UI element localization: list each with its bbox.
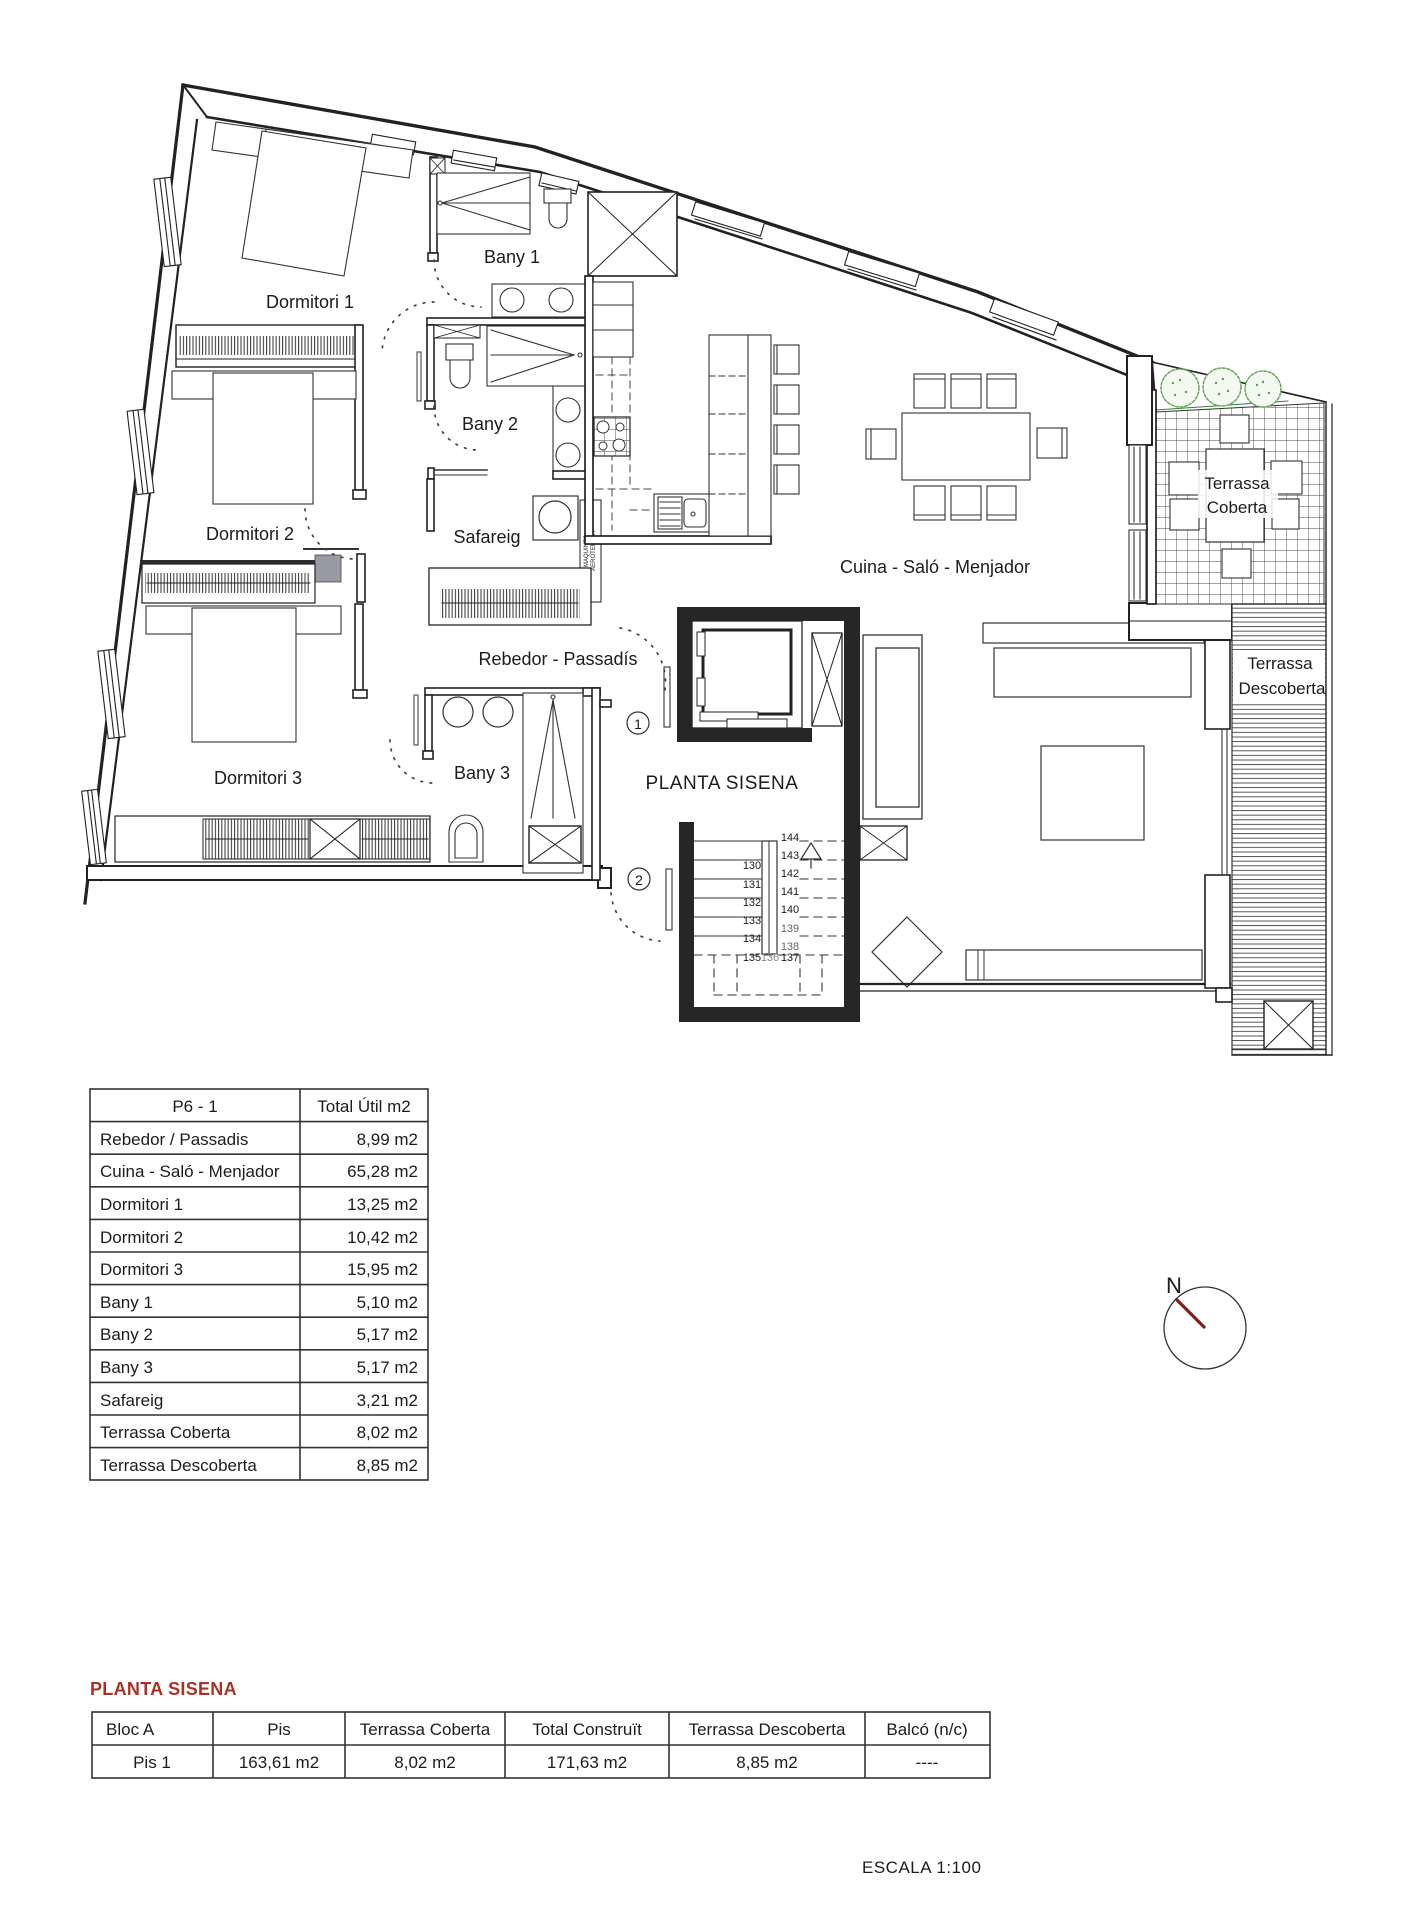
svg-text:Coberta: Coberta — [1207, 498, 1268, 517]
svg-text:140: 140 — [781, 904, 799, 916]
svg-text:133: 133 — [743, 915, 761, 927]
svg-text:PLANTA SISENA: PLANTA SISENA — [646, 773, 799, 794]
svg-text:137: 137 — [781, 952, 799, 964]
svg-text:130: 130 — [743, 860, 761, 872]
svg-text:134: 134 — [743, 933, 761, 945]
svg-text:10,42 m2: 10,42 m2 — [347, 1228, 418, 1247]
svg-text:8,85 m2: 8,85 m2 — [736, 1753, 797, 1772]
svg-text:65,28 m2: 65,28 m2 — [347, 1162, 418, 1181]
svg-text:141: 141 — [781, 886, 799, 898]
svg-text:Terrassa Coberta: Terrassa Coberta — [360, 1720, 491, 1739]
svg-text:3,21 m2: 3,21 m2 — [357, 1391, 418, 1410]
svg-text:142: 142 — [781, 868, 799, 880]
svg-text:Terrassa Descoberta: Terrassa Descoberta — [689, 1720, 846, 1739]
svg-text:Dormitori 2: Dormitori 2 — [100, 1228, 183, 1247]
svg-text:Bloc A: Bloc A — [106, 1720, 155, 1739]
svg-text:Safareig: Safareig — [100, 1391, 163, 1410]
svg-text:8,02 m2: 8,02 m2 — [394, 1753, 455, 1772]
svg-text:Cuina - Saló - Menjador: Cuina - Saló - Menjador — [100, 1162, 280, 1181]
svg-text:Dormitori 1: Dormitori 1 — [100, 1195, 183, 1214]
svg-text:Bany 1: Bany 1 — [484, 247, 540, 267]
svg-text:N: N — [1166, 1273, 1182, 1298]
svg-text:5,17 m2: 5,17 m2 — [357, 1325, 418, 1344]
svg-text:Pis 1: Pis 1 — [133, 1753, 171, 1772]
svg-text:Dormitori 2: Dormitori 2 — [206, 524, 294, 544]
svg-text:Descoberta: Descoberta — [1239, 679, 1326, 698]
svg-text:----: ---- — [916, 1753, 939, 1772]
svg-text:Bany 2: Bany 2 — [462, 414, 518, 434]
svg-text:135: 135 — [743, 952, 761, 964]
svg-text:Dormitori 3: Dormitori 3 — [214, 768, 302, 788]
svg-text:Cuina - Saló - Menjador: Cuina - Saló - Menjador — [840, 557, 1030, 577]
svg-text:Bany 3: Bany 3 — [454, 763, 510, 783]
svg-text:Total Construït: Total Construït — [532, 1720, 642, 1739]
svg-text:Dormitori 3: Dormitori 3 — [100, 1260, 183, 1279]
svg-text:Bany 1: Bany 1 — [100, 1293, 153, 1312]
svg-text:144: 144 — [781, 832, 799, 844]
svg-text:2: 2 — [635, 872, 643, 888]
svg-text:8,85 m2: 8,85 m2 — [357, 1456, 418, 1475]
svg-text:Balcó (n/c): Balcó (n/c) — [886, 1720, 967, 1739]
svg-text:Terrassa: Terrassa — [1204, 474, 1270, 493]
svg-text:5,10 m2: 5,10 m2 — [357, 1293, 418, 1312]
svg-text:P6 - 1: P6 - 1 — [172, 1097, 217, 1116]
svg-text:Bany 3: Bany 3 — [100, 1358, 153, 1377]
svg-text:Rebedor / Passadis: Rebedor / Passadis — [100, 1130, 248, 1149]
svg-text:PLANTA SISENA: PLANTA SISENA — [90, 1679, 237, 1699]
svg-text:Terrassa Descoberta: Terrassa Descoberta — [100, 1456, 257, 1475]
svg-text:Total Útil m2: Total Útil m2 — [317, 1097, 411, 1116]
svg-text:143: 143 — [781, 850, 799, 862]
svg-text:Pis: Pis — [267, 1720, 291, 1739]
svg-text:Rebedor - Passadís: Rebedor - Passadís — [478, 649, 637, 669]
svg-text:163,61 m2: 163,61 m2 — [239, 1753, 319, 1772]
svg-text:1: 1 — [634, 716, 642, 732]
svg-text:8,99 m2: 8,99 m2 — [357, 1130, 418, 1149]
svg-text:Bany 2: Bany 2 — [100, 1325, 153, 1344]
svg-text:171,63 m2: 171,63 m2 — [547, 1753, 627, 1772]
svg-text:Safareig: Safareig — [453, 527, 520, 547]
svg-text:ESCALA 1:100: ESCALA 1:100 — [862, 1858, 981, 1877]
svg-text:132: 132 — [743, 897, 761, 909]
svg-text:139: 139 — [781, 923, 799, 935]
svg-text:13,25 m2: 13,25 m2 — [347, 1195, 418, 1214]
svg-text:Terrassa Coberta: Terrassa Coberta — [100, 1423, 231, 1442]
svg-text:Terrassa: Terrassa — [1247, 654, 1313, 673]
svg-text:8,02 m2: 8,02 m2 — [357, 1423, 418, 1442]
svg-text:Dormitori 1: Dormitori 1 — [266, 292, 354, 312]
svg-text:136: 136 — [761, 952, 779, 964]
svg-text:5,17 m2: 5,17 m2 — [357, 1358, 418, 1377]
svg-text:131: 131 — [743, 879, 761, 891]
svg-text:15,95 m2: 15,95 m2 — [347, 1260, 418, 1279]
